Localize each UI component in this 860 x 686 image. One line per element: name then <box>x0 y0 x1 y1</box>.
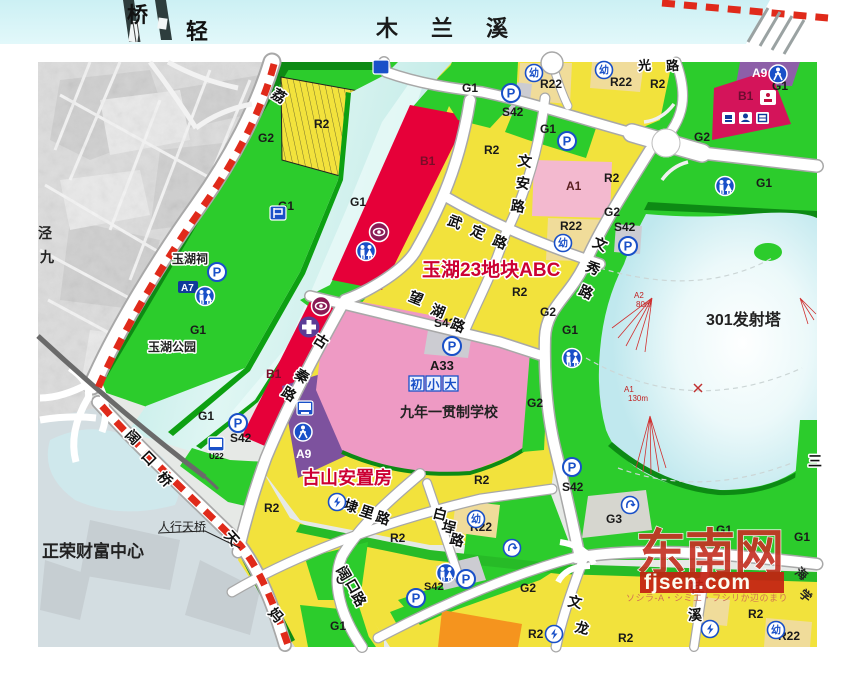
svg-text:正荣财富中心: 正荣财富中心 <box>42 541 144 561</box>
svg-text:轻: 轻 <box>186 19 208 44</box>
svg-text:G1: G1 <box>462 81 478 95</box>
svg-text:玉湖公园: 玉湖公园 <box>148 339 196 354</box>
svg-text:130m: 130m <box>628 394 648 403</box>
svg-text:A2: A2 <box>634 291 644 300</box>
svg-text:S42: S42 <box>562 480 584 494</box>
svg-text:G1: G1 <box>756 176 772 190</box>
svg-text:初: 初 <box>411 377 423 392</box>
svg-text:S42: S42 <box>614 220 636 234</box>
svg-text:玉湖23地块ABC: 玉湖23地块ABC <box>422 258 561 281</box>
svg-text:桥: 桥 <box>127 3 149 27</box>
svg-text:G2: G2 <box>604 205 620 219</box>
svg-text:A7: A7 <box>181 283 194 294</box>
svg-text:fjsen.com: fjsen.com <box>644 571 751 594</box>
svg-text:九: 九 <box>39 249 54 265</box>
svg-text:R2: R2 <box>604 171 620 185</box>
svg-text:G2: G2 <box>520 581 536 595</box>
svg-text:G1: G1 <box>540 122 556 136</box>
svg-text:九年一贯制学校: 九年一贯制学校 <box>399 404 499 420</box>
svg-text:G2: G2 <box>694 130 710 144</box>
svg-text:小: 小 <box>428 377 440 392</box>
svg-text:R2: R2 <box>484 143 500 157</box>
svg-text:木兰溪: 木兰溪 <box>375 16 541 41</box>
svg-text:光: 光 <box>637 57 652 73</box>
svg-text:R2: R2 <box>390 531 406 545</box>
svg-text:A9: A9 <box>296 447 312 461</box>
svg-text:R2: R2 <box>528 627 544 641</box>
svg-text:A9: A9 <box>752 66 768 80</box>
svg-text:G1: G1 <box>794 530 810 544</box>
svg-text:B1: B1 <box>266 367 282 381</box>
svg-text:安: 安 <box>515 174 531 192</box>
svg-text:B1: B1 <box>738 89 754 103</box>
svg-text:G2: G2 <box>540 305 556 319</box>
svg-text:溪: 溪 <box>688 607 703 623</box>
svg-text:R22: R22 <box>560 219 582 233</box>
svg-text:R2: R2 <box>618 631 634 645</box>
svg-text:A33: A33 <box>430 358 454 373</box>
svg-text:R2: R2 <box>314 117 330 131</box>
svg-text:B1: B1 <box>420 154 436 168</box>
svg-text:G1: G1 <box>330 619 346 633</box>
svg-text:R22: R22 <box>610 75 632 89</box>
svg-text:路: 路 <box>666 58 681 74</box>
svg-text:泾: 泾 <box>38 225 52 241</box>
svg-text:G1: G1 <box>190 323 206 337</box>
svg-text:古山安置房: 古山安置房 <box>302 467 392 488</box>
svg-text:玉湖祠: 玉湖祠 <box>172 251 208 266</box>
svg-text:R22: R22 <box>540 77 562 91</box>
svg-text:S42: S42 <box>230 431 252 445</box>
svg-text:G3: G3 <box>606 512 622 526</box>
svg-text:G1: G1 <box>198 409 214 423</box>
svg-text:A1: A1 <box>624 385 634 394</box>
svg-text:G1: G1 <box>562 323 578 337</box>
svg-text:S42: S42 <box>424 581 444 593</box>
svg-text:G2: G2 <box>258 131 274 145</box>
svg-text:A1: A1 <box>566 179 582 193</box>
svg-text:301发射塔: 301发射塔 <box>706 310 782 329</box>
svg-text:R2: R2 <box>650 77 666 91</box>
svg-text:U22: U22 <box>209 452 224 461</box>
svg-text:R2: R2 <box>474 473 490 487</box>
svg-text:80m: 80m <box>636 300 652 309</box>
svg-text:R2: R2 <box>512 285 528 299</box>
svg-text:G2: G2 <box>527 396 543 410</box>
svg-text:三: 三 <box>808 453 822 469</box>
svg-text:R2: R2 <box>264 501 280 515</box>
svg-text:ソシラ-A・シミエ・フシリか辺のまり: ソシラ-A・シミエ・フシリか辺のまり <box>626 593 788 603</box>
svg-text:R2: R2 <box>748 607 764 621</box>
svg-text:大: 大 <box>445 377 457 392</box>
svg-text:G1: G1 <box>350 195 366 209</box>
